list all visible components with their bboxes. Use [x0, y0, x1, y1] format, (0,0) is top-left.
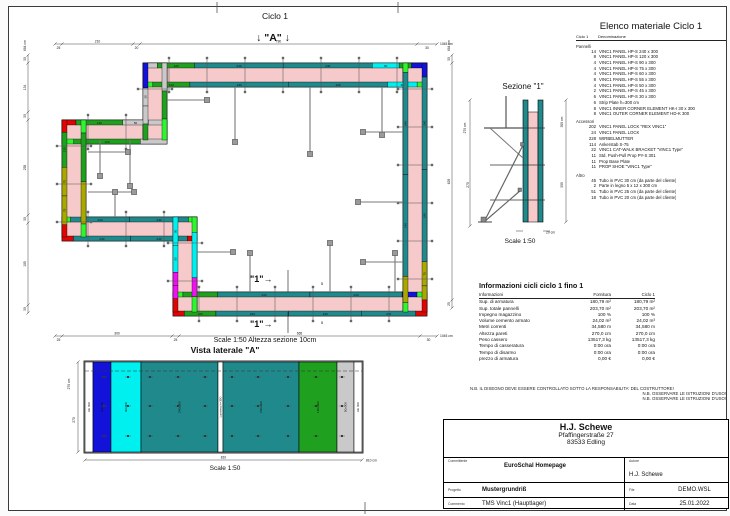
info-cell: Ciclo 1 — [611, 292, 655, 298]
info-cell: prezzo di armatura — [479, 356, 555, 362]
vista-title: Vista laterale "A" — [130, 346, 320, 356]
client-value: EuroSchal Homepage — [448, 463, 622, 469]
company-address2: 83533 Edling — [444, 439, 728, 446]
company-name: H.J. Schewe — [444, 422, 728, 432]
comment-value: TMS Vinc1 (Hauptlager) — [482, 501, 546, 507]
project-label: Progetto — [448, 488, 482, 492]
sezione-scale: Scale 1:50 — [478, 238, 562, 245]
info-cell: Fornitura — [555, 292, 611, 298]
file-value: DEMO.WSL — [663, 487, 726, 493]
material-row: 18Tubo in PVC 20 cm (da parte del client… — [576, 195, 726, 201]
material-desc: PROP SHOE "VINC1 Type" — [599, 164, 652, 170]
file-label: File — [629, 488, 663, 492]
section-a-marker: ↓ "A" ↓ — [228, 32, 318, 44]
material-desc: Tubo in PVC 20 cm (da parte del cliente) — [599, 195, 676, 201]
material-qty: 8 — [576, 111, 596, 117]
date-value: 25.01.2022 — [663, 501, 726, 507]
comment-label: Commento — [448, 502, 482, 506]
info-cell: Informazioni — [479, 292, 555, 298]
section-1-marker-bottom: "1"→ — [250, 319, 300, 329]
material-qty: 11 — [576, 164, 596, 170]
info-row: prezzo di armatura0,00 €0,00 € — [479, 356, 655, 362]
material-row: 11PROP SHOE "VINC1 Type" — [576, 164, 726, 170]
material-list-body: Pannelli14VINC1 PANEL HP-S 240 x 3008VIN… — [576, 44, 726, 201]
info-cell: 0,00 € — [555, 356, 611, 362]
cycle-info-body: InformazioniFornituraCiclo 1Sup. di arma… — [479, 292, 655, 362]
title-block: H.J. Schewe Pfaffingerstraße 27 83533 Ed… — [443, 419, 729, 509]
author-value: H.J. Schewe — [629, 472, 663, 478]
date-cell: Data 25.01.2022 — [625, 498, 728, 510]
info-header-row: InformazioniFornituraCiclo 1 — [479, 292, 655, 299]
material-col-name: Denominazione — [598, 34, 626, 39]
date-label: Data — [629, 502, 663, 506]
project-value: Mustergrundriß — [482, 487, 526, 493]
client-cell: Committente EuroSchal Homepage — [444, 458, 625, 482]
title-block-company-cell: H.J. Schewe Pfaffingerstraße 27 83533 Ed… — [444, 420, 728, 458]
section-1-marker-top: "1"→ — [250, 274, 300, 284]
sezione-title: Sezione "1" — [468, 82, 578, 91]
screenshot-root: { "colors":{ "teal":"#20898c","green":"#… — [0, 0, 730, 516]
info-cell: 0,00 € — [611, 356, 655, 362]
material-list-header: Ciclo 1 Denominazione — [576, 34, 726, 41]
cycle-info-title: Informazioni cicli ciclo 1 fino 1 — [479, 281, 655, 290]
project-cell: Progetto Mustergrundriß — [444, 483, 625, 497]
material-col-qty: Ciclo 1 — [576, 34, 598, 39]
material-row: 8VINC1 OUTER CORNER ELEMENT HD-K 300 — [576, 111, 726, 117]
material-list-title: Elenco materiale Ciclo 1 — [576, 21, 726, 32]
material-qty: 18 — [576, 195, 596, 201]
nb-notes: N.B. IL DISEGNO DEVE ESSERE CONTROLLATO … — [470, 386, 726, 402]
plan-title: Ciclo 1 — [180, 12, 370, 22]
material-list: Elenco materiale Ciclo 1 Ciclo 1 Denomin… — [576, 21, 726, 200]
author-label: Autore — [629, 459, 726, 463]
material-desc: VINC1 OUTER CORNER ELEMENT HD-K 300 — [599, 111, 689, 117]
file-cell: File DEMO.WSL — [625, 483, 728, 497]
nb-line: N.B. OSSERVARE LE ISTRUZIONI D'USO! — [470, 396, 726, 401]
comment-cell: Commento TMS Vinc1 (Hauptlager) — [444, 498, 625, 510]
plan-scale-note: Scale 1:50 Altezza sezione 10cm — [150, 337, 380, 345]
vista-scale: Scale 1:50 — [150, 465, 300, 472]
author-cell: Autore H.J. Schewe — [625, 458, 728, 482]
company-address1: Pfaffingerstraße 27 — [444, 432, 728, 439]
cycle-info-table: Informazioni cicli ciclo 1 fino 1 Inform… — [479, 281, 655, 362]
